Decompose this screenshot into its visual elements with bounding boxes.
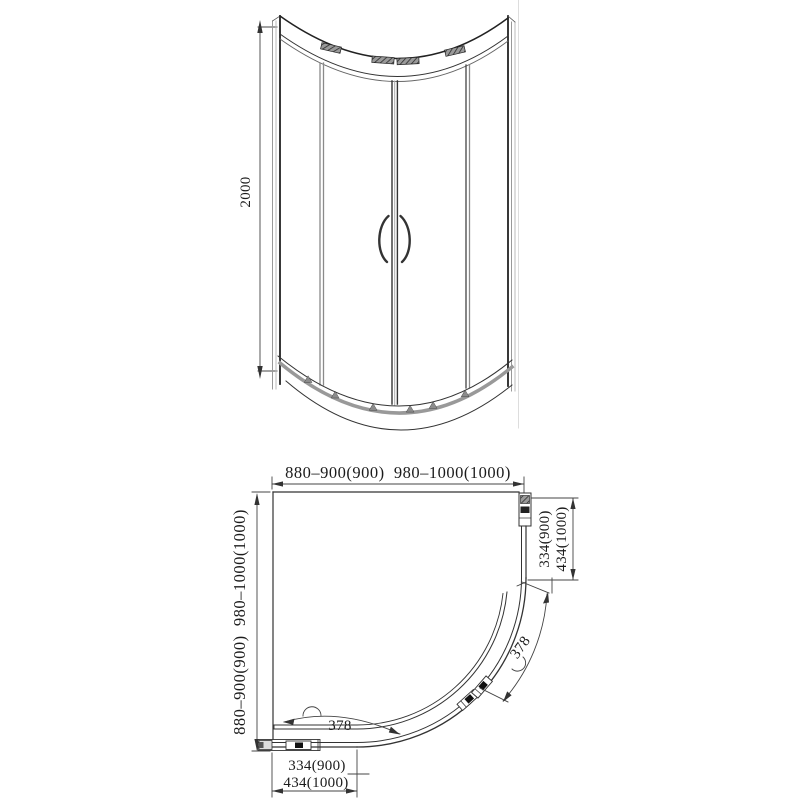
arrowhead-right: [389, 727, 400, 735]
right-wall-profile: [508, 0, 519, 428]
bottom-opening-dim-label-a: 334(900): [288, 758, 345, 774]
arrowhead-up: [257, 20, 262, 33]
door-arc-dim-left-label: 378: [328, 718, 351, 734]
arrowhead-down: [257, 366, 262, 379]
arrowhead-left: [272, 481, 283, 486]
wall-lines: [273, 492, 519, 739]
arrowhead-left: [283, 719, 295, 725]
roller-icon: [372, 56, 394, 64]
arrowhead-up: [254, 493, 259, 505]
arrowhead-down: [570, 569, 575, 580]
door-arc-dim-right-label: 378: [507, 634, 534, 662]
arrowhead-left: [272, 788, 283, 793]
right-opening-dimension: [528, 498, 578, 593]
front-height-dimension: [257, 20, 277, 379]
roller-icon: [397, 57, 419, 65]
arc-symbol: [303, 707, 321, 716]
top-rollers: [321, 43, 466, 65]
right-opening-dim-label-b: 434(1000): [554, 506, 570, 571]
plan-depth-dimension: [252, 492, 270, 751]
arrowhead-up: [570, 498, 575, 509]
front-height-dim-label: 2000: [238, 176, 254, 207]
door-bracket: [472, 676, 493, 698]
top-track-curve: [280, 16, 508, 82]
arrowhead-right: [513, 481, 524, 486]
left-wall-profile: [273, 16, 281, 389]
drawing-sheet: 2000 880–900(900) 980–1000(1000) 880–900…: [0, 0, 800, 800]
curve-roller-brackets: [457, 676, 492, 711]
plan-view: [252, 477, 578, 797]
right-handle-icon: [401, 216, 410, 262]
arrowhead-down: [503, 691, 512, 702]
arrowhead-up: [543, 592, 549, 604]
right-opening-dim-label-a: 334(900): [537, 510, 553, 567]
glass-panel-dividers: [320, 63, 470, 405]
front-elevation-view: [257, 0, 518, 430]
plan-depth-dim-label: 880–900(900) 980–1000(1000): [230, 509, 249, 735]
right-wall-end-profile: [519, 493, 531, 578]
left-handle-icon: [379, 216, 388, 262]
plan-width-dim-label: 880–900(900) 980–1000(1000): [285, 463, 511, 482]
technical-drawing: 2000 880–900(900) 980–1000(1000) 880–900…: [0, 0, 800, 800]
quadrant-track-arc: [357, 578, 526, 747]
bottom-wall-end-profile: [258, 740, 357, 751]
bottom-opening-dim-label-b: 434(1000): [283, 775, 348, 791]
sliding-door-arcs: [274, 592, 507, 729]
